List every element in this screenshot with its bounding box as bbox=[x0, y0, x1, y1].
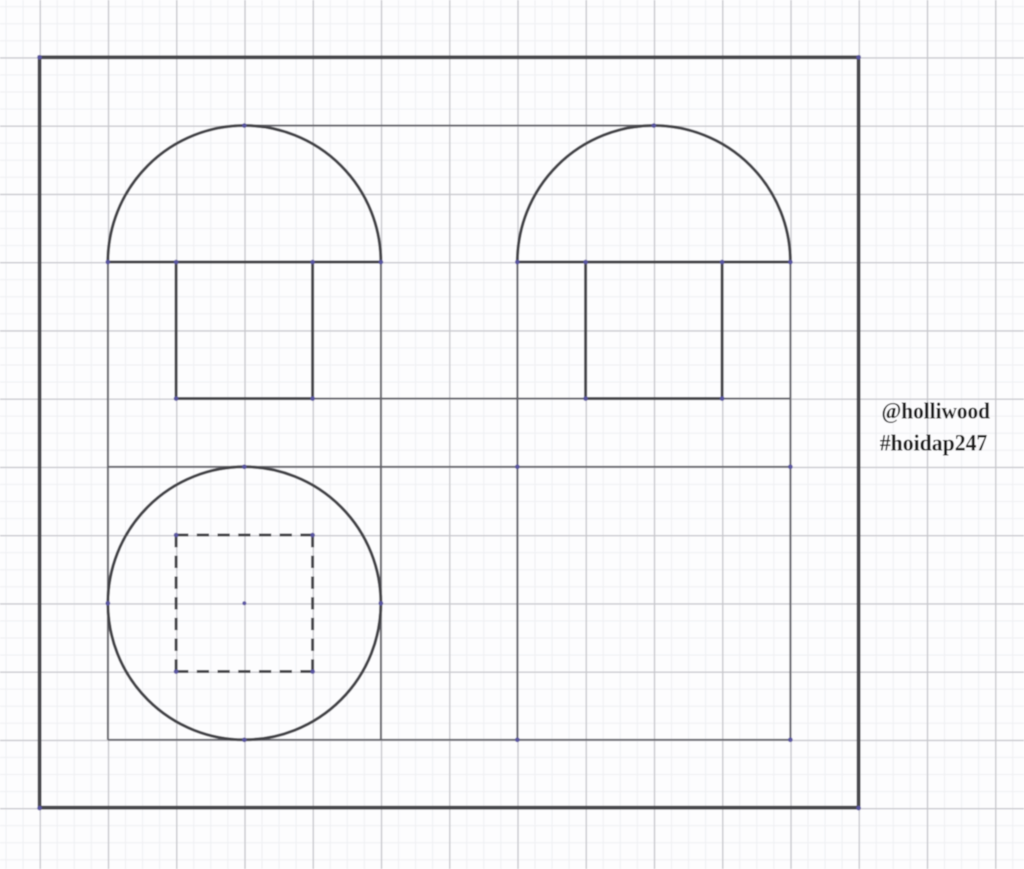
svg-text:@holliwood: @holliwood bbox=[882, 398, 991, 424]
svg-text:#hoidap247: #hoidap247 bbox=[880, 431, 988, 456]
